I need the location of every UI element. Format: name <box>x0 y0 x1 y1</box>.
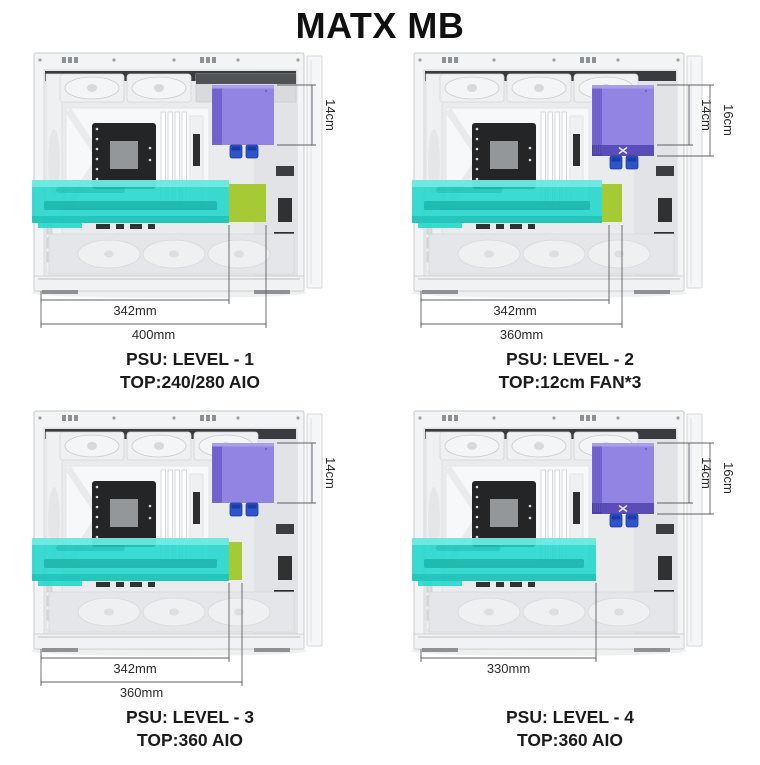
panel-level-1: 14cm342mm400mm PSU: LEVEL - 1 TOP:240/28… <box>0 48 380 394</box>
panel-level-2: 14cm16cm342mm360mm PSU: LEVEL - 2 TOP:12… <box>380 48 760 394</box>
psu-height-label: 14cm <box>323 457 338 489</box>
top-support-label: TOP:360 AIO <box>506 729 634 752</box>
psu-level-label: PSU: LEVEL - 3 <box>126 706 254 729</box>
panel-caption: PSU: LEVEL - 2 TOP:12cm FAN*3 <box>499 348 642 394</box>
bottom-fans <box>429 592 674 632</box>
gpu-length-label: 400mm <box>132 327 175 342</box>
bottom-fans <box>429 234 674 274</box>
panel-level-4: 14cm16cm330mm PSU: LEVEL - 4 TOP:360 AIO <box>380 406 760 752</box>
gpu-length-label: 360mm <box>120 685 163 700</box>
gpu-block <box>412 538 596 586</box>
clearance-block <box>229 542 242 580</box>
gpu-length-label: 330mm <box>487 661 530 676</box>
gpu-length-label: 342mm <box>113 303 156 318</box>
gpu-length-label: 360mm <box>500 327 543 342</box>
top-support-label: TOP:360 AIO <box>126 729 254 752</box>
gpu-length-label: 342mm <box>493 303 536 318</box>
clearance-block <box>602 184 622 222</box>
top-support-label: TOP:240/280 AIO <box>120 371 260 394</box>
psu-height-label: 14cm <box>699 457 714 489</box>
panel-caption: PSU: LEVEL - 3 TOP:360 AIO <box>126 706 254 752</box>
case-illustration-level-1: 14cm342mm400mm <box>4 48 376 348</box>
clearance-block <box>229 184 266 222</box>
panel-caption: PSU: LEVEL - 4 TOP:360 AIO <box>506 706 634 752</box>
top-support-label: TOP:12cm FAN*3 <box>499 371 642 394</box>
gpu-block <box>412 180 602 228</box>
panel-level-3: 14cm342mm360mm PSU: LEVEL - 3 TOP:360 AI… <box>0 406 380 752</box>
psu-level-label: PSU: LEVEL - 4 <box>506 706 634 729</box>
case-illustration-level-3: 14cm342mm360mm <box>4 406 376 706</box>
bottom-fans <box>49 234 294 274</box>
panel-grid: 14cm342mm400mm PSU: LEVEL - 1 TOP:240/28… <box>0 48 760 752</box>
case-illustration-level-4: 14cm16cm330mm <box>384 406 756 706</box>
psu-level-label: PSU: LEVEL - 1 <box>120 348 260 371</box>
gpu-block <box>32 180 229 228</box>
psu-height-max-label: 16cm <box>721 104 736 136</box>
panel-caption: PSU: LEVEL - 1 TOP:240/280 AIO <box>120 348 260 394</box>
psu-height-max-label: 16cm <box>721 462 736 494</box>
psu-height-label: 14cm <box>323 99 338 131</box>
psu-level-label: PSU: LEVEL - 2 <box>499 348 642 371</box>
case-illustration-level-2: 14cm16cm342mm360mm <box>384 48 756 348</box>
gpu-length-label: 342mm <box>113 661 156 676</box>
page-title: MATX MB <box>0 5 760 47</box>
bottom-fans <box>49 592 294 632</box>
gpu-block <box>32 538 229 586</box>
psu-height-label: 14cm <box>699 99 714 131</box>
